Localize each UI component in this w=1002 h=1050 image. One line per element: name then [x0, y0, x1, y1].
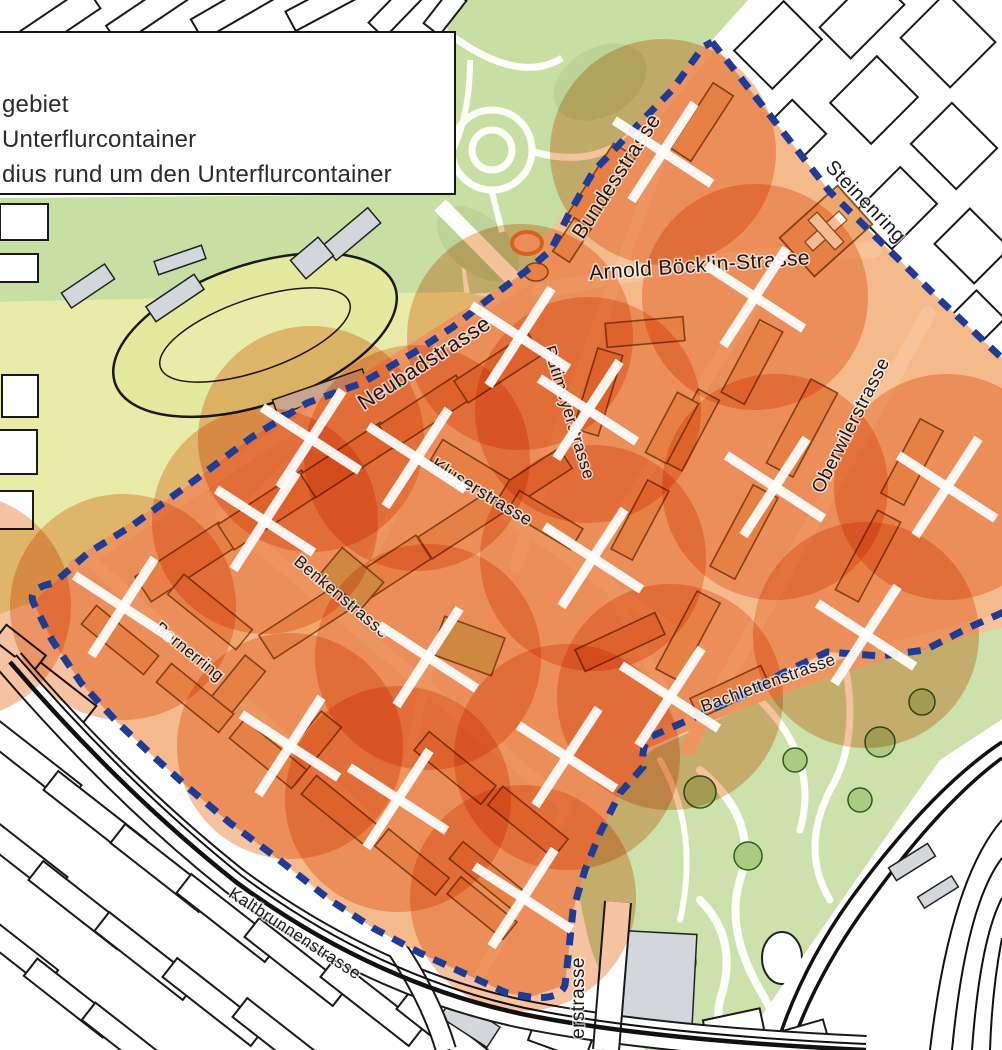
legend-item-radius: dius rund um den Unterflurcontainer — [2, 157, 454, 192]
building-block — [2, 375, 38, 417]
legend-item-container: Unterflurcontainer — [2, 122, 454, 157]
legend-item-area: gebiet — [2, 87, 454, 122]
zoo-tree — [734, 842, 762, 870]
street-label: erstrasse — [568, 957, 589, 1039]
zoo-tree — [848, 788, 872, 812]
basel-pilot-area-map: BundesstrasseSteinenringArnold Böcklin-S… — [0, 0, 1002, 1050]
zoo-tree — [783, 748, 807, 772]
legend-box: gebiet Unterflurcontainer dius rund um d… — [0, 31, 456, 195]
building-block — [0, 204, 48, 240]
building-block — [0, 254, 38, 282]
building-block — [0, 430, 37, 474]
